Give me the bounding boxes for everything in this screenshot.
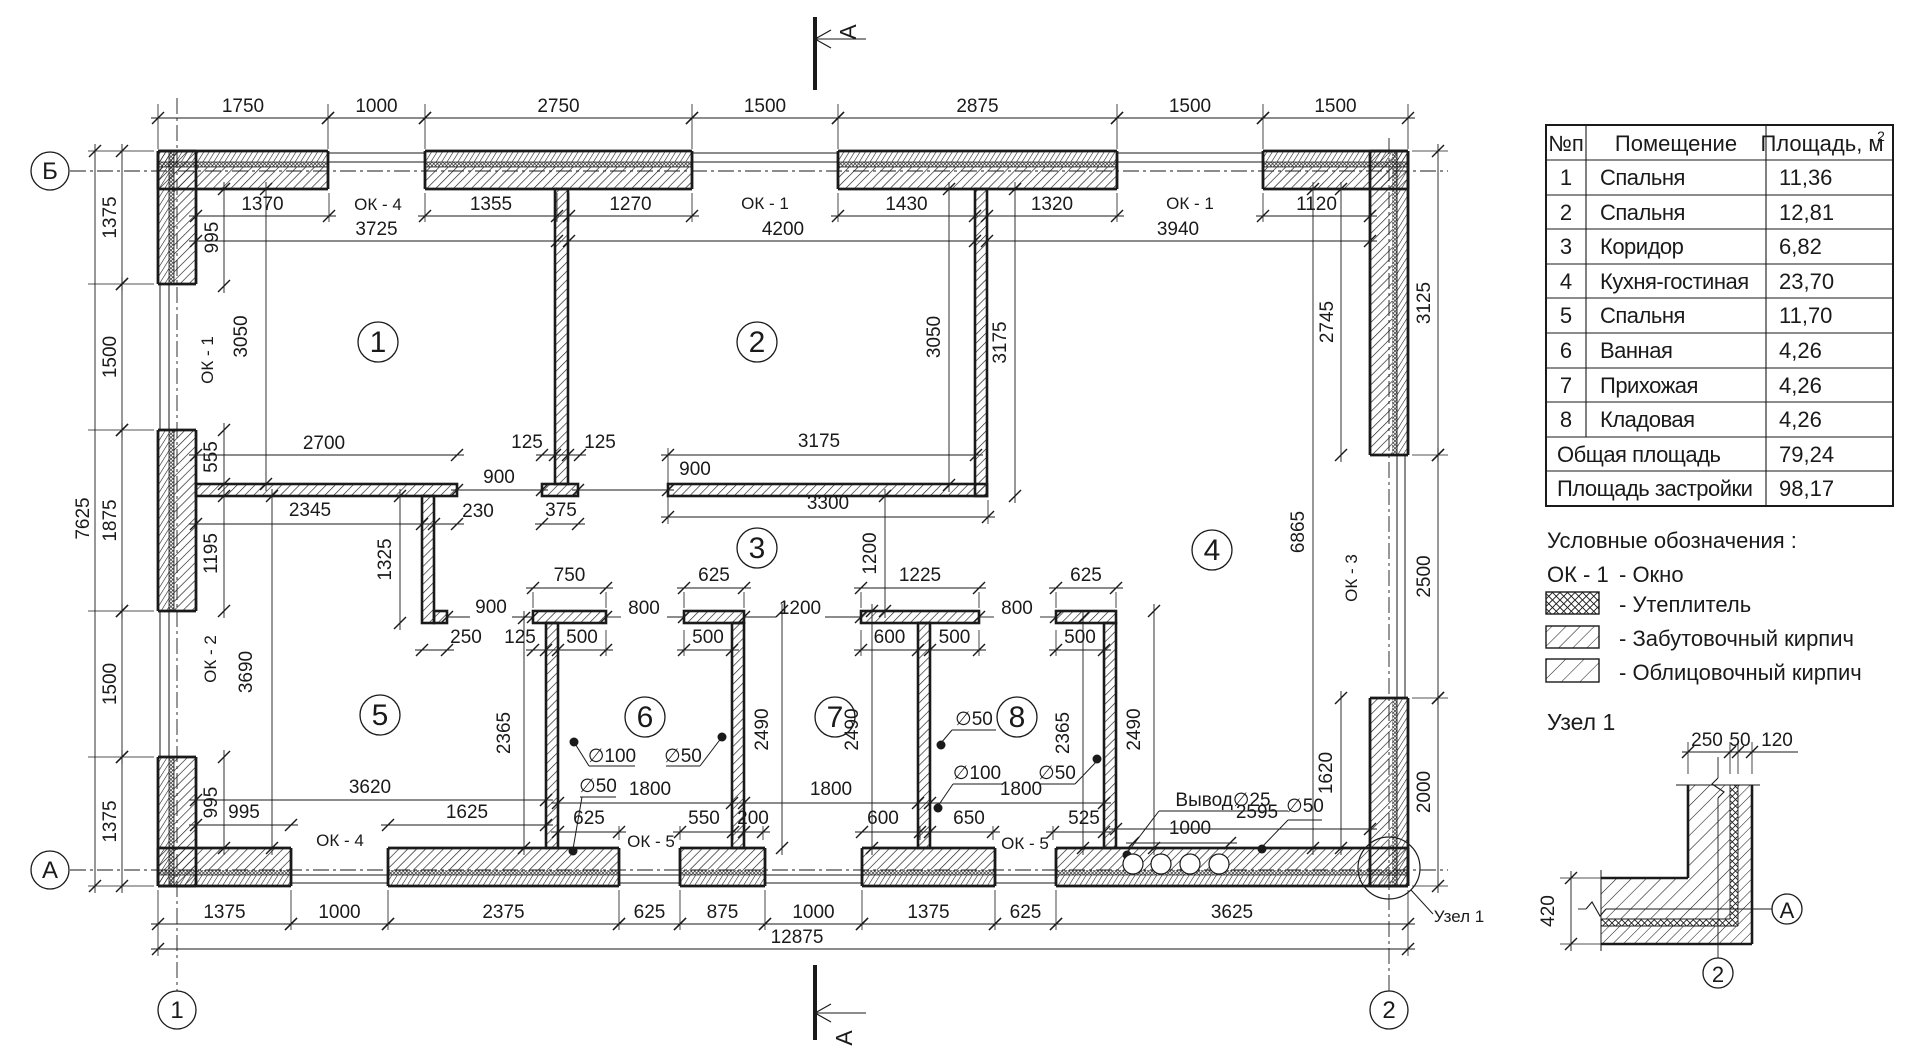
svg-text:1000: 1000 <box>318 902 360 923</box>
svg-text:525: 525 <box>1068 808 1100 829</box>
svg-text:∅100: ∅100 <box>588 746 636 767</box>
svg-text:- Утеплитель: - Утеплитель <box>1619 592 1751 617</box>
svg-text:875: 875 <box>707 902 739 923</box>
svg-text:600: 600 <box>867 808 899 829</box>
svg-text:200: 200 <box>737 808 769 829</box>
svg-text:3050: 3050 <box>231 315 252 357</box>
svg-text:ОК - 1: ОК - 1 <box>1166 194 1214 213</box>
svg-text:А: А <box>831 1030 857 1046</box>
svg-text:2745: 2745 <box>1317 301 1338 343</box>
svg-text:3620: 3620 <box>349 777 391 798</box>
svg-text:500: 500 <box>692 627 724 648</box>
svg-text:3125: 3125 <box>1414 282 1435 324</box>
svg-text:Спальня: Спальня <box>1600 303 1685 328</box>
svg-text:23,70: 23,70 <box>1779 269 1834 294</box>
svg-text:А: А <box>835 24 861 40</box>
svg-text:420: 420 <box>1538 895 1559 927</box>
svg-text:2700: 2700 <box>303 433 345 454</box>
svg-text:А: А <box>42 857 58 884</box>
svg-text:Коридор: Коридор <box>1600 234 1684 259</box>
svg-text:1355: 1355 <box>470 194 512 215</box>
svg-text:- Забутовочный кирпич: - Забутовочный кирпич <box>1619 626 1854 651</box>
svg-text:Спальня: Спальня <box>1600 200 1685 225</box>
svg-text:125: 125 <box>511 432 543 453</box>
svg-text:250: 250 <box>1691 730 1723 751</box>
svg-text:750: 750 <box>554 565 586 586</box>
svg-text:4,26: 4,26 <box>1779 373 1822 398</box>
svg-text:995: 995 <box>228 802 260 823</box>
svg-text:7: 7 <box>827 701 844 734</box>
svg-text:ОК - 2: ОК - 2 <box>201 635 220 683</box>
svg-text:900: 900 <box>679 459 711 480</box>
svg-text:650: 650 <box>953 808 985 829</box>
svg-text:1500: 1500 <box>100 663 121 705</box>
svg-text:995: 995 <box>201 787 222 819</box>
svg-text:50: 50 <box>1729 730 1750 751</box>
svg-text:12,81: 12,81 <box>1779 200 1834 225</box>
svg-text:2: 2 <box>1877 128 1885 144</box>
svg-text:Б: Б <box>42 158 58 185</box>
svg-text:625: 625 <box>1070 565 1102 586</box>
svg-text:900: 900 <box>475 597 507 618</box>
svg-text:500: 500 <box>939 627 971 648</box>
svg-text:Узел 1: Узел 1 <box>1547 709 1615 735</box>
svg-text:120: 120 <box>1761 730 1793 751</box>
svg-text:2875: 2875 <box>956 96 998 117</box>
svg-text:11,36: 11,36 <box>1779 165 1832 190</box>
svg-text:1375: 1375 <box>100 196 121 238</box>
svg-text:1000: 1000 <box>355 96 397 117</box>
svg-text:1000: 1000 <box>1169 818 1211 839</box>
svg-text:1500: 1500 <box>744 96 786 117</box>
svg-text:8: 8 <box>1560 407 1572 432</box>
svg-text:6: 6 <box>1560 338 1572 363</box>
svg-text:Прихожая: Прихожая <box>1600 373 1698 398</box>
svg-text:ОК - 1: ОК - 1 <box>198 336 217 384</box>
svg-text:6865: 6865 <box>1288 511 1309 553</box>
svg-text:Площадь, м: Площадь, м <box>1760 131 1883 156</box>
svg-text:1120: 1120 <box>1296 194 1337 215</box>
svg-text:1875: 1875 <box>100 499 121 541</box>
svg-text:125: 125 <box>584 432 616 453</box>
svg-text:2750: 2750 <box>537 96 579 117</box>
svg-text:230: 230 <box>462 501 494 522</box>
svg-text:1195: 1195 <box>201 533 222 574</box>
svg-text:550: 550 <box>688 808 720 829</box>
svg-text:3175: 3175 <box>798 431 840 452</box>
svg-text:3725: 3725 <box>355 219 397 240</box>
svg-text:98,17: 98,17 <box>1779 476 1834 501</box>
svg-text:2365: 2365 <box>494 712 515 754</box>
svg-text:Помещение: Помещение <box>1615 131 1737 156</box>
svg-text:555: 555 <box>201 441 222 473</box>
svg-text:625: 625 <box>698 565 730 586</box>
svg-text:625: 625 <box>1010 902 1042 923</box>
svg-text:6: 6 <box>637 701 654 734</box>
svg-text:995: 995 <box>202 222 223 254</box>
svg-text:1500: 1500 <box>1314 96 1356 117</box>
svg-text:∅50: ∅50 <box>664 746 702 767</box>
svg-text:375: 375 <box>545 500 577 521</box>
svg-text:4: 4 <box>1560 269 1572 294</box>
svg-text:2345: 2345 <box>289 500 331 521</box>
svg-text:5: 5 <box>372 699 389 732</box>
svg-text:3: 3 <box>1560 234 1572 259</box>
svg-text:3175: 3175 <box>990 321 1011 363</box>
svg-text:250: 250 <box>450 627 482 648</box>
svg-text:ОК - 5: ОК - 5 <box>627 832 675 851</box>
svg-text:2365: 2365 <box>1053 712 1074 754</box>
svg-text:500: 500 <box>566 627 598 648</box>
svg-text:1325: 1325 <box>375 538 396 580</box>
svg-text:2: 2 <box>1712 962 1724 987</box>
svg-text:Кладовая: Кладовая <box>1600 407 1695 432</box>
svg-text:1: 1 <box>1560 165 1572 190</box>
svg-text:- Облицовочный кирпич: - Облицовочный кирпич <box>1619 660 1862 685</box>
svg-text:900: 900 <box>483 467 515 488</box>
svg-text:ОК - 1: ОК - 1 <box>741 194 789 213</box>
svg-text:1270: 1270 <box>609 194 651 215</box>
svg-text:1625: 1625 <box>446 802 488 823</box>
svg-text:4,26: 4,26 <box>1779 338 1822 363</box>
svg-text:∅50: ∅50 <box>1286 796 1324 817</box>
svg-text:800: 800 <box>1001 598 1033 619</box>
svg-text:1500: 1500 <box>100 336 121 378</box>
svg-text:2: 2 <box>749 326 766 359</box>
svg-text:1: 1 <box>170 997 183 1024</box>
svg-text:1500: 1500 <box>1169 96 1211 117</box>
svg-text:Общая площадь: Общая площадь <box>1557 442 1720 467</box>
svg-text:600: 600 <box>874 627 906 648</box>
svg-text:1000: 1000 <box>792 902 834 923</box>
svg-text:2490: 2490 <box>842 708 863 750</box>
svg-text:Площадь застройки: Площадь застройки <box>1557 476 1752 501</box>
svg-text:Условные обозначения :: Условные обозначения : <box>1547 528 1797 553</box>
svg-text:2000: 2000 <box>1414 771 1435 813</box>
svg-text:6,82: 6,82 <box>1779 234 1822 259</box>
svg-text:500: 500 <box>1064 627 1096 648</box>
svg-text:3940: 3940 <box>1157 219 1199 240</box>
svg-text:1430: 1430 <box>885 194 927 215</box>
svg-text:3050: 3050 <box>924 316 945 358</box>
svg-text:∅100: ∅100 <box>953 763 1001 784</box>
svg-text:Спальня: Спальня <box>1600 165 1685 190</box>
svg-text:11,70: 11,70 <box>1779 303 1832 328</box>
svg-text:2: 2 <box>1560 200 1572 225</box>
svg-text:2500: 2500 <box>1414 555 1435 597</box>
svg-text:ОК - 1: ОК - 1 <box>1547 562 1609 587</box>
svg-text:Кухня-гостиная: Кухня-гостиная <box>1600 269 1749 294</box>
svg-text:1800: 1800 <box>629 779 671 800</box>
svg-text:№п: №п <box>1548 131 1584 156</box>
svg-text:1: 1 <box>370 326 387 359</box>
svg-text:8: 8 <box>1009 701 1026 734</box>
svg-text:800: 800 <box>628 598 660 619</box>
svg-text:7625: 7625 <box>73 497 94 539</box>
svg-text:Ванная: Ванная <box>1600 338 1672 363</box>
svg-text:- Окно: - Окно <box>1619 562 1684 587</box>
svg-text:1200: 1200 <box>860 532 881 574</box>
svg-text:3625: 3625 <box>1211 902 1253 923</box>
svg-text:1620: 1620 <box>1316 752 1337 794</box>
svg-text:3300: 3300 <box>807 493 849 514</box>
svg-text:7: 7 <box>1560 373 1572 398</box>
svg-text:1800: 1800 <box>810 779 852 800</box>
svg-text:∅50: ∅50 <box>955 709 993 730</box>
svg-text:Вывод∅25: Вывод∅25 <box>1175 790 1270 811</box>
svg-text:ОК - 4: ОК - 4 <box>354 195 402 214</box>
svg-text:2: 2 <box>1382 997 1395 1024</box>
svg-text:Узел 1: Узел 1 <box>1434 907 1484 926</box>
svg-text:2490: 2490 <box>1124 708 1145 750</box>
svg-text:1750: 1750 <box>222 96 264 117</box>
svg-text:3690: 3690 <box>236 651 257 693</box>
svg-text:∅50: ∅50 <box>579 776 617 797</box>
svg-text:ОК - 3: ОК - 3 <box>1342 554 1361 602</box>
svg-text:1225: 1225 <box>899 565 941 586</box>
svg-text:∅50: ∅50 <box>1038 763 1076 784</box>
svg-text:4200: 4200 <box>762 219 804 240</box>
svg-text:125: 125 <box>504 627 536 648</box>
svg-text:1320: 1320 <box>1031 194 1073 215</box>
svg-text:1375: 1375 <box>907 902 949 923</box>
svg-text:1375: 1375 <box>203 902 245 923</box>
svg-text:1375: 1375 <box>100 800 121 842</box>
svg-text:1370: 1370 <box>241 194 283 215</box>
svg-text:625: 625 <box>634 902 666 923</box>
svg-text:ОК - 4: ОК - 4 <box>316 831 364 850</box>
svg-text:79,24: 79,24 <box>1779 442 1834 467</box>
svg-text:ОК - 5: ОК - 5 <box>1001 834 1049 853</box>
svg-text:12875: 12875 <box>771 927 824 948</box>
svg-text:3: 3 <box>749 532 766 565</box>
svg-text:4,26: 4,26 <box>1779 407 1822 432</box>
svg-text:2375: 2375 <box>482 902 524 923</box>
svg-text:1800: 1800 <box>1000 779 1042 800</box>
svg-text:5: 5 <box>1560 303 1572 328</box>
svg-text:4: 4 <box>1204 534 1221 567</box>
svg-text:А: А <box>1780 898 1795 923</box>
svg-text:2490: 2490 <box>752 708 773 750</box>
